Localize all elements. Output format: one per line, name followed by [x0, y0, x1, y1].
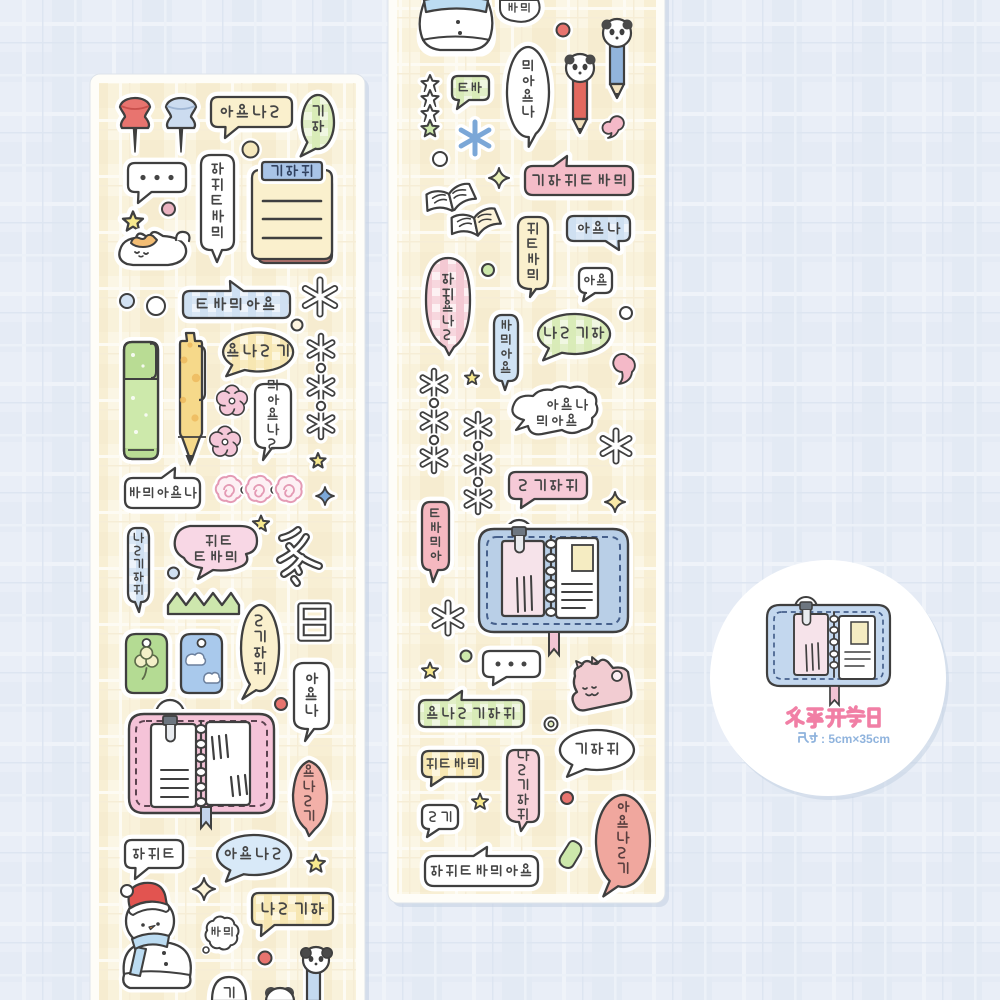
- svg-text:: 5cm×35cm: : 5cm×35cm: [821, 732, 890, 746]
